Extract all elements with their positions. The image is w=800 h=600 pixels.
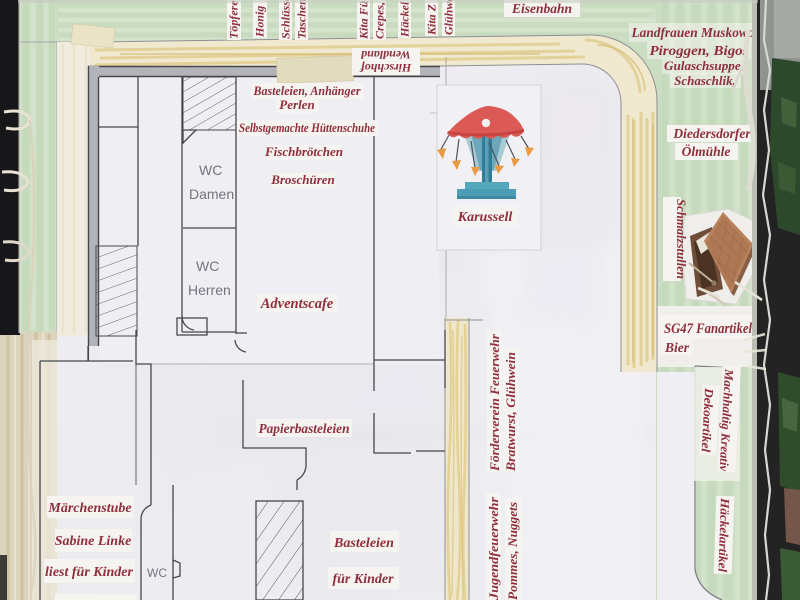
- svg-text:Honig: Honig: [253, 6, 267, 38]
- svg-text:Herren: Herren: [188, 282, 231, 298]
- svg-text:Glühwe: Glühwe: [442, 0, 456, 35]
- svg-text:Kita Z: Kita Z: [425, 3, 439, 36]
- svg-text:Märchenstube: Märchenstube: [47, 501, 131, 516]
- svg-text:Basteleien: Basteleien: [333, 536, 394, 551]
- svg-text:liest für Kinder: liest für Kinder: [45, 565, 133, 580]
- svg-text:Adventscafe: Adventscafe: [260, 296, 334, 312]
- svg-text:Hirschhof: Hirschhof: [360, 61, 413, 75]
- svg-text:Diedersdorfer: Diedersdorfer: [672, 126, 751, 141]
- svg-text:Wendland: Wendland: [360, 48, 411, 62]
- svg-text:Schlüsse: Schlüsse: [279, 0, 293, 39]
- svg-text:Pommes, Nuggets: Pommes, Nuggets: [506, 502, 520, 600]
- svg-text:Förderverein Feuerwehr: Förderverein Feuerwehr: [488, 334, 502, 472]
- svg-text:Damen: Damen: [189, 186, 234, 202]
- svg-text:Ölmühle: Ölmühle: [682, 144, 731, 159]
- svg-text:Perlen: Perlen: [279, 97, 314, 112]
- svg-text:Eisenbahn: Eisenbahn: [511, 1, 572, 16]
- svg-text:Crepes,: Crepes,: [373, 2, 387, 39]
- svg-text:Bratwurst, Glühwein: Bratwurst, Glühwein: [504, 352, 518, 472]
- svg-text:Schmalzstullen: Schmalzstullen: [674, 199, 688, 279]
- svg-text:Papierbasteleien: Papierbasteleien: [259, 421, 350, 436]
- svg-text:für Kinder: für Kinder: [332, 572, 394, 587]
- svg-text:Karussell: Karussell: [457, 210, 513, 225]
- svg-text:WC: WC: [196, 258, 219, 274]
- svg-text:WC: WC: [147, 566, 167, 580]
- svg-text:Fischbrötchen: Fischbrötchen: [264, 144, 343, 159]
- svg-text:Gulaschsuppe,: Gulaschsuppe,: [664, 58, 744, 73]
- svg-text:Landfrauen Muskowo: Landfrauen Muskowo: [631, 25, 755, 40]
- svg-text:Piroggen, Bigos: Piroggen, Bigos: [650, 43, 749, 58]
- svg-text:Selbstgemachte Hüttenschuhe: Selbstgemachte Hüttenschuhe: [239, 121, 375, 135]
- svg-text:SG47 Fanartikel: SG47 Fanartikel: [664, 321, 752, 337]
- svg-text:Töpferei: Töpferei: [227, 0, 241, 39]
- svg-text:Häckelartikel: Häckelartikel: [715, 497, 732, 573]
- svg-text:Bier: Bier: [664, 340, 690, 355]
- svg-text:Sabine Linke: Sabine Linke: [55, 534, 132, 549]
- svg-text:Schaschlik,: Schaschlik,: [674, 73, 736, 88]
- svg-text:Basteleien, Anhänger: Basteleien, Anhänger: [253, 83, 362, 98]
- svg-text:WC: WC: [199, 162, 222, 178]
- svg-text:Kita Fü: Kita Fü: [357, 0, 371, 40]
- svg-text:Häckel: Häckel: [398, 1, 412, 38]
- svg-text:Jugendfeuerwehr: Jugendfeuerwehr: [487, 497, 501, 600]
- svg-text:Taschen: Taschen: [295, 0, 309, 39]
- svg-text:Broschüren: Broschüren: [270, 172, 335, 187]
